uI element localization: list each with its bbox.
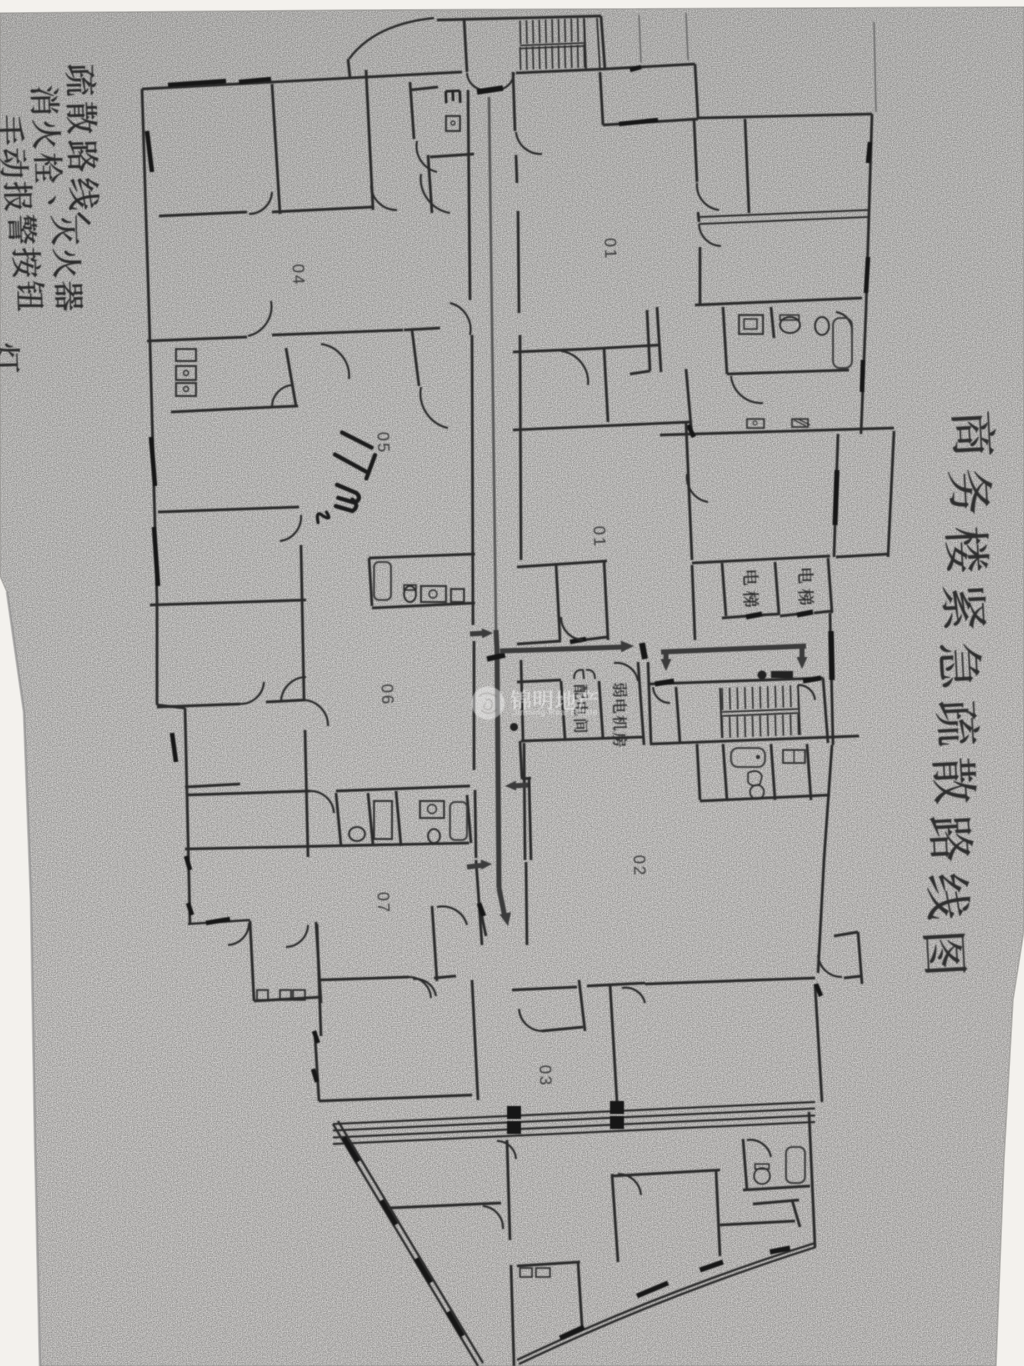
svg-text:01: 01 (601, 238, 620, 261)
svg-text:07: 07 (374, 892, 393, 915)
svg-text:02: 02 (630, 855, 649, 878)
svg-text:05: 05 (374, 432, 393, 455)
svg-text:04: 04 (289, 264, 308, 287)
svg-text:01: 01 (590, 526, 609, 549)
svg-text:03: 03 (536, 1065, 555, 1088)
svg-text:Jinming Real Estate: Jinming Real Estate (513, 707, 598, 717)
svg-text:06: 06 (378, 684, 397, 707)
